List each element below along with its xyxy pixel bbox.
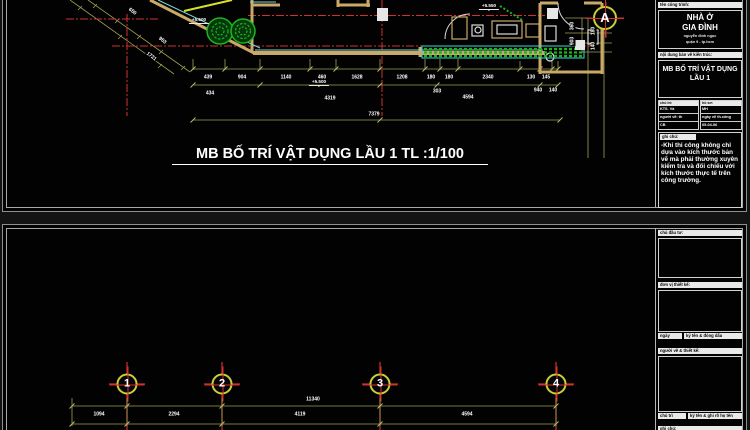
sheet1-titleblock-divider: [655, 0, 656, 207]
notes-body: -Khi thi công không chỉ dựa vào kích thư…: [659, 140, 741, 186]
staff-right-row: 05-04-06: [701, 122, 741, 129]
tb2-box1-header: chủ đầu tư:: [658, 230, 742, 236]
tb2-box3-foot-left: chủ trì: [658, 413, 686, 419]
titleblock-staff-left: chủ trì: KTS. Và người vẽ: th CB: [658, 100, 699, 130]
titleblock-notes-box: ghi chú: -Khi thi công không chỉ dựa vào…: [658, 132, 742, 208]
staff-left-row: người vẽ: th: [659, 114, 698, 122]
titleblock-drawing-box: MB BỐ TRÍ VẬT DỤNG LẦU 1: [658, 60, 742, 98]
drawing-name-line2: LẦU 1: [659, 74, 741, 83]
cad-canvas: 4399041140460162812081801802340130145 43…: [0, 0, 750, 430]
tb2-box4-header: ghi chú:: [658, 426, 742, 430]
titleblock-project-header: tên công trình:: [658, 2, 742, 8]
tb2-box2: [658, 290, 742, 332]
tb2-box1: [658, 238, 742, 278]
project-subline2: quận 9 - tp.hcm: [659, 40, 741, 45]
tb2-box3-header: người vẽ & thiết kế:: [658, 348, 742, 354]
sheet2-inner-border: [6, 228, 743, 430]
staff-left-row: CB: [659, 122, 698, 129]
staff-left-row: KTS. Và: [659, 106, 698, 114]
sheet2-titleblock-divider: [655, 228, 656, 430]
sheet1-inner-border: [6, 0, 743, 208]
titleblock-staff-right: hồ sơ: MH ngày vẽ th.công 05-04-06: [700, 100, 742, 130]
titleblock-project-box: NHÀ Ở GIA ĐÌNH nguyễn đình ngọc quận 9 -…: [658, 10, 742, 49]
tb2-box2-foot-left: ngày: [658, 333, 682, 339]
staff-right-row: ngày vẽ th.công: [701, 114, 741, 122]
tb2-box3: [658, 356, 742, 412]
titleblock-drawing-header: nội dung bản vẽ kiến trúc:: [658, 52, 742, 58]
project-subline1: nguyễn đình ngọc: [659, 34, 741, 39]
tb2-box2-header: đơn vị thiết kế:: [658, 282, 742, 288]
staff-right-row: MH: [701, 106, 741, 114]
project-name-line1: NHÀ Ở: [659, 13, 741, 23]
tb2-box3-foot-right: ký tên & ghi rõ họ tên: [688, 413, 742, 419]
drawing-name-line1: MB BỐ TRÍ VẬT DỤNG: [659, 65, 741, 74]
project-name-line2: GIA ĐÌNH: [659, 23, 741, 33]
tb2-box2-foot-right: ký tên & đóng dấu: [684, 333, 742, 339]
drawing-title: MB BỐ TRÍ VẬT DỤNG LẦU 1 TL :1/100: [172, 146, 488, 165]
